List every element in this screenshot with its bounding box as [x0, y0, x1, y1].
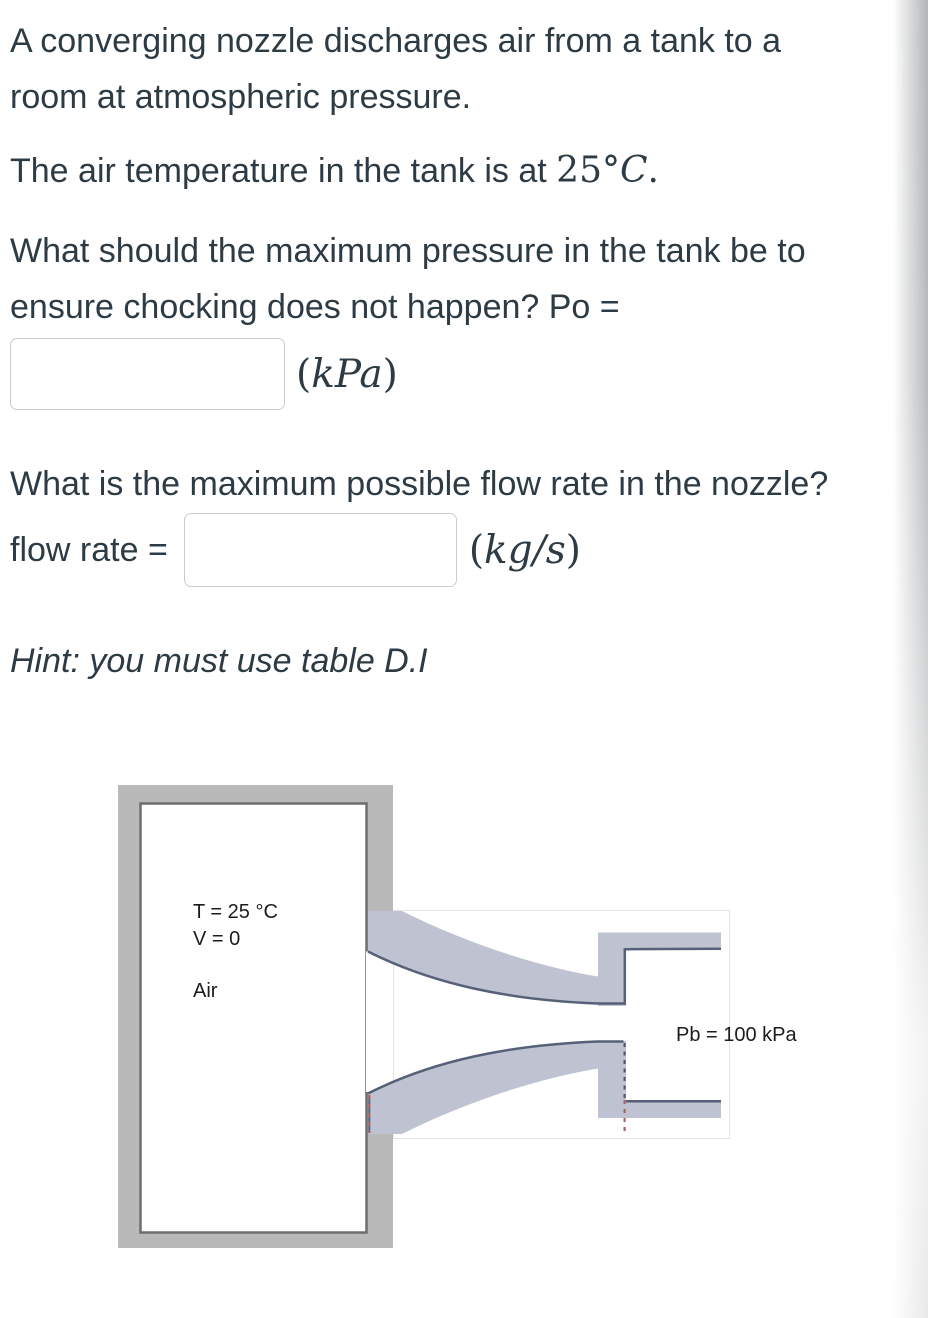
flow-rate-unit-label: (kg/s) [469, 528, 581, 573]
nozzle-diagram: T = 25 °C V = 0 Air Pb = 100 kPa [0, 780, 830, 1260]
flow-rate-question: What is the maximum possible flow rate i… [10, 456, 828, 512]
flow-unit-paren-close: ) [566, 528, 581, 573]
po-unit-label: (kPa) [296, 352, 398, 397]
flow-rate-question-line1: What is the maximum possible flow rate i… [10, 456, 828, 512]
po-unit-paren-close: ) [383, 352, 398, 397]
back-pressure-label: Pb = 100 kPa [676, 1024, 798, 1046]
tank-interior [141, 804, 367, 1233]
flow-rate-answer-input[interactable] [184, 513, 457, 587]
temperature-statement-text: The air temperature in the tank is at [10, 152, 556, 190]
flow-unit-paren-open: ( [469, 528, 484, 573]
temperature-unit: C [620, 150, 648, 191]
problem-statement: A converging nozzle discharges air from … [10, 13, 781, 125]
temperature-period: . [648, 150, 659, 191]
po-unit-paren-open: ( [296, 352, 311, 397]
tank-velocity-label: V = 0 [193, 928, 240, 950]
pressure-question: What should the maximum pressure in the … [10, 223, 806, 335]
flow-rate-label: flow rate = [10, 531, 168, 570]
po-answer-row: (kPa) [10, 338, 398, 410]
problem-statement-line1: A converging nozzle discharges air from … [10, 13, 781, 69]
problem-statement-line2: room at atmospheric pressure. [10, 69, 781, 125]
po-unit-text: kPa [311, 352, 382, 397]
pressure-question-line2: ensure chocking does not happen? Po = [10, 279, 806, 335]
temperature-statement: The air temperature in the tank is at 25… [10, 143, 659, 199]
tank-medium-label: Air [193, 980, 218, 1002]
quiz-question-page: A converging nozzle discharges air from … [0, 0, 928, 1318]
hint-text: Hint: you must use table D.I [10, 633, 428, 689]
flow-unit-text: kg/s [484, 528, 566, 573]
po-answer-input[interactable] [10, 338, 285, 410]
pressure-question-line1: What should the maximum pressure in the … [10, 223, 806, 279]
temperature-value: 25° [556, 150, 620, 191]
tank-temperature-label: T = 25 °C [193, 901, 278, 923]
flow-rate-answer-row: flow rate = (kg/s) [10, 513, 581, 587]
tank-opening [366, 952, 393, 1093]
scrollbar-track[interactable] [893, 0, 928, 1318]
